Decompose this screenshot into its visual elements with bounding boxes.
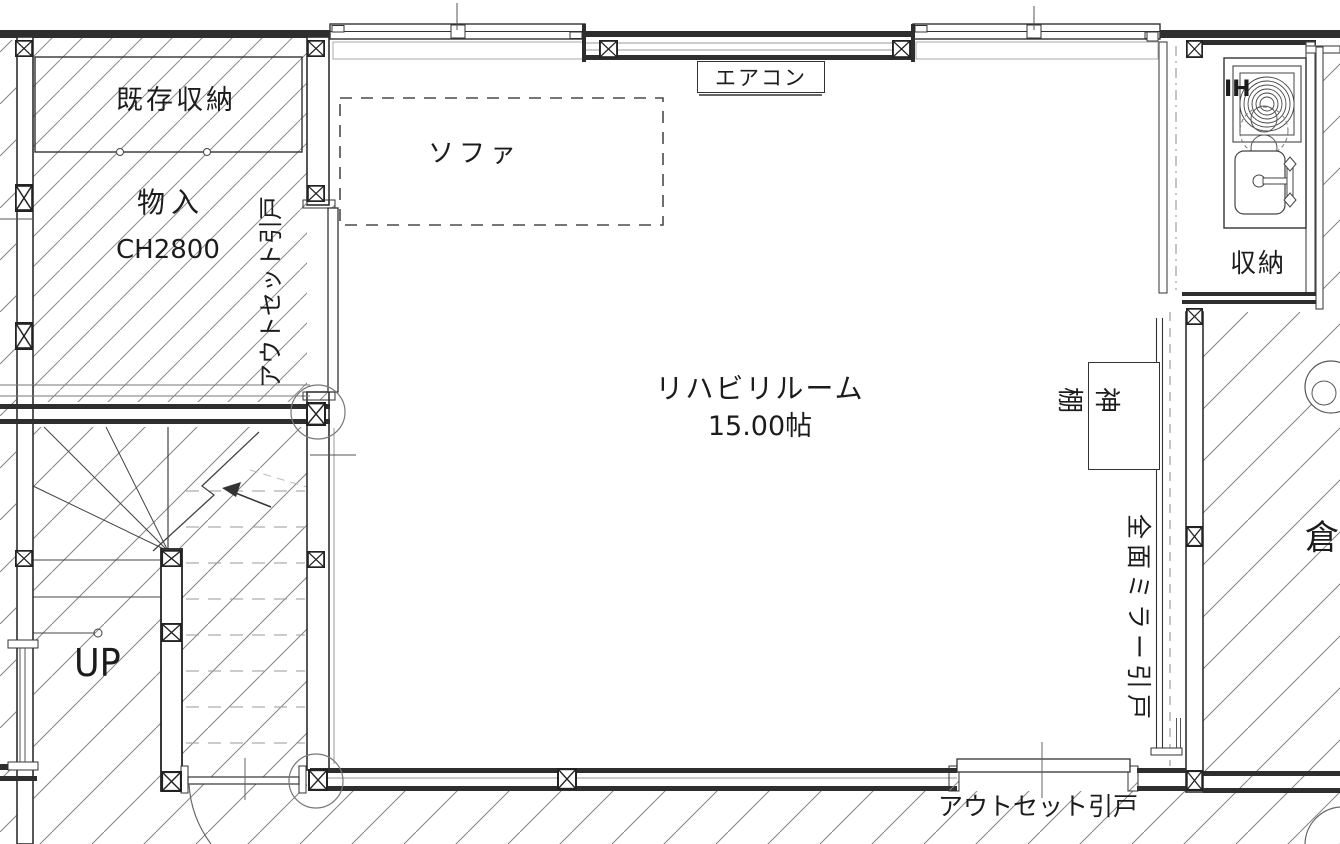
- ceiling-height-label: CH2800: [116, 236, 220, 265]
- stairs-up-label: UP: [74, 643, 121, 685]
- ih-cooktop-label: IH: [1224, 78, 1251, 102]
- aircon-label: エアコン: [715, 62, 807, 92]
- outset-sliding-door-left-label: アウトセット引戸: [258, 196, 284, 388]
- aircon-label-box: エアコン: [697, 61, 825, 93]
- room-area-label: 15.00帖: [640, 412, 880, 442]
- room-name-label: リハビリルーム: [640, 374, 880, 405]
- floor-plan: 既存収納 物入 CH2800 アウトセット引戸 ソファ エアコン リハビリルーム…: [0, 0, 1340, 844]
- storage-label: 収納: [1220, 250, 1296, 279]
- kamidana-label-box: 神棚: [1088, 362, 1160, 470]
- outset-sliding-door-bottom: [949, 742, 1138, 798]
- stair-wall-stub: [161, 549, 182, 791]
- sofa-label: ソファ: [428, 140, 521, 169]
- existing-storage-label: 既存収納: [116, 86, 236, 116]
- outset-sliding-door-bottom-label: アウトセット引戸: [938, 793, 1138, 821]
- warehouse-label: 倉: [1305, 520, 1339, 557]
- window-top-right: [911, 24, 1160, 62]
- kamidana-label: 神棚: [1053, 387, 1127, 419]
- full-mirror-sliding-door-label: 全面ミラー引戸: [1125, 514, 1153, 724]
- window-top-left: [330, 24, 586, 62]
- closet-label: 物入: [137, 188, 205, 219]
